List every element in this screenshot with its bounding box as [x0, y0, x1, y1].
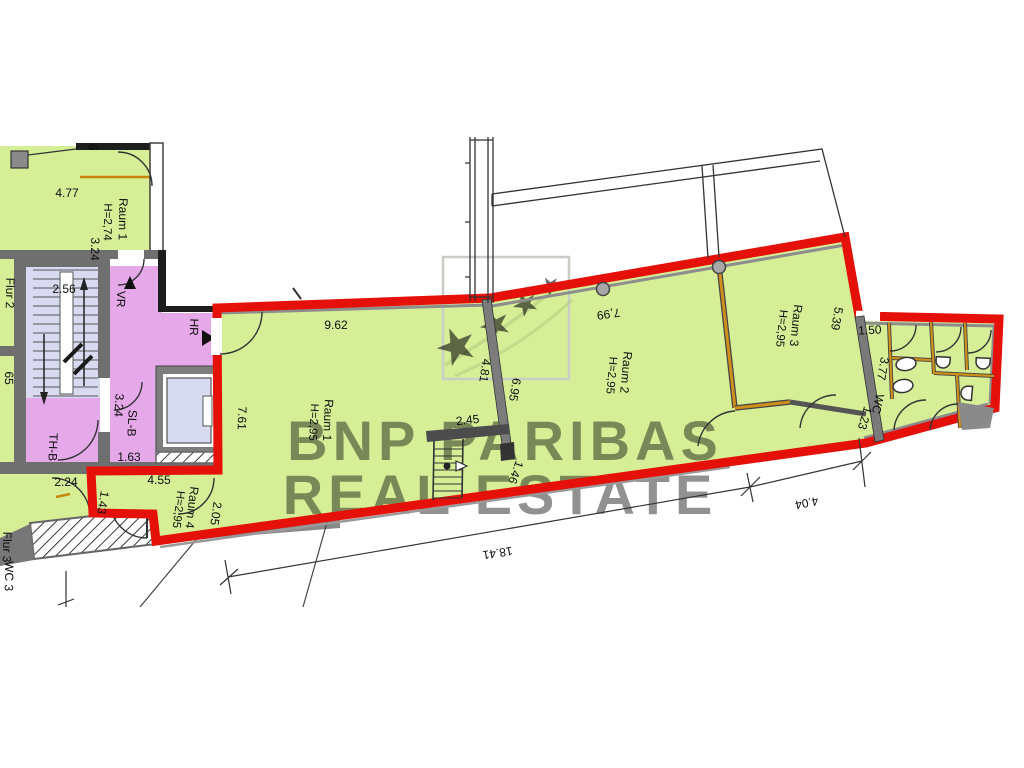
label-raum1-neighbor-height: H=2,74: [101, 203, 114, 241]
dim-1-63: 1.63: [117, 450, 141, 464]
dim-2-45: 2.45: [455, 412, 480, 428]
dim-18-41: 18.41: [481, 544, 513, 563]
label-vr: VR: [114, 291, 129, 308]
dim-partial-6: 6: [86, 144, 100, 151]
dim-4-04: 4.04: [794, 494, 820, 512]
room-thb: [26, 398, 100, 462]
dim-partial-65: 65: [2, 371, 16, 385]
label-raum1-height: H=2,95: [306, 403, 320, 441]
label-hr: HR: [187, 318, 202, 336]
column: [597, 283, 610, 296]
tick-mark: [293, 288, 301, 299]
hatch-strip: [156, 452, 222, 463]
handrail-post: [444, 463, 451, 470]
dim-4-77: 4.77: [55, 186, 79, 200]
pillar: [11, 151, 28, 168]
door-gap: [118, 250, 144, 259]
dim-2-56: 2.56: [52, 282, 76, 296]
floorplan-canvas: ★ ★ ★ ★ BNP PARIBAS REAL ESTATE: [0, 0, 1024, 768]
dim-3-24: 3.24: [88, 237, 102, 261]
floorplan-page: ★ ★ ★ ★ BNP PARIBAS REAL ESTATE: [0, 0, 1024, 768]
dim-2-24: 2.24: [54, 475, 78, 489]
dim-4-55: 4.55: [147, 473, 171, 487]
dim-7-61: 7.61: [235, 406, 250, 430]
label-raum1-neighbor: Raum 1: [116, 198, 131, 241]
label-slb: SL-B: [124, 410, 139, 437]
dim-3-24b: 3.24: [111, 393, 126, 417]
toilet: [936, 357, 951, 369]
column: [713, 261, 726, 274]
toilet: [976, 358, 991, 370]
door-gap: [211, 318, 222, 355]
dim-1-50: 1.50: [858, 322, 882, 337]
label-flur2: Flur 2: [3, 278, 18, 309]
elevator: [156, 366, 222, 463]
dim-9-62: 9.62: [324, 318, 348, 332]
label-raum1: Raum 1: [320, 399, 336, 442]
label-wc3-partial: WC 3: [2, 561, 17, 592]
elevator-door: [203, 396, 212, 426]
label-thb: TH-B: [46, 433, 61, 461]
wall: [150, 143, 163, 256]
label-flur3-partial: Flur 3: [0, 532, 14, 563]
